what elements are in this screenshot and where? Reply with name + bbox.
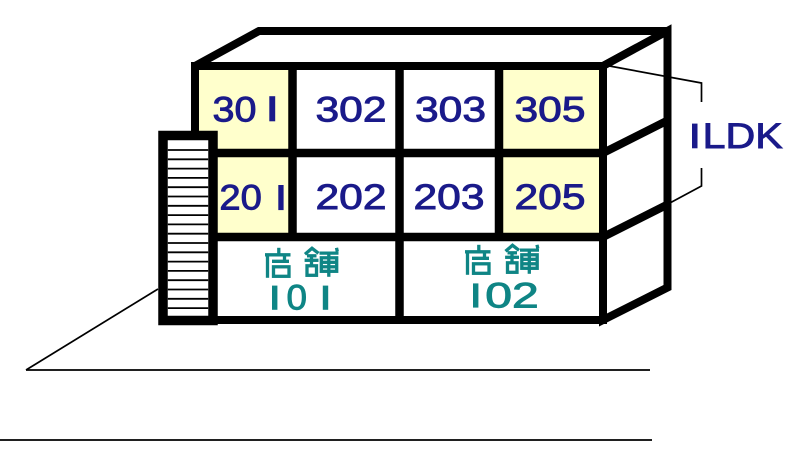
svg-text:30: 30 <box>213 90 257 129</box>
svg-text:203: 203 <box>414 178 485 217</box>
svg-text:LDK: LDK <box>703 117 783 156</box>
svg-text:0: 0 <box>287 279 308 318</box>
svg-text:305: 305 <box>515 90 586 129</box>
svg-text:302: 302 <box>316 90 387 129</box>
svg-text:20: 20 <box>219 179 262 218</box>
svg-text:303: 303 <box>415 90 486 129</box>
svg-text:02: 02 <box>485 276 539 315</box>
svg-text:205: 205 <box>515 178 586 217</box>
svg-text:202: 202 <box>316 178 387 217</box>
